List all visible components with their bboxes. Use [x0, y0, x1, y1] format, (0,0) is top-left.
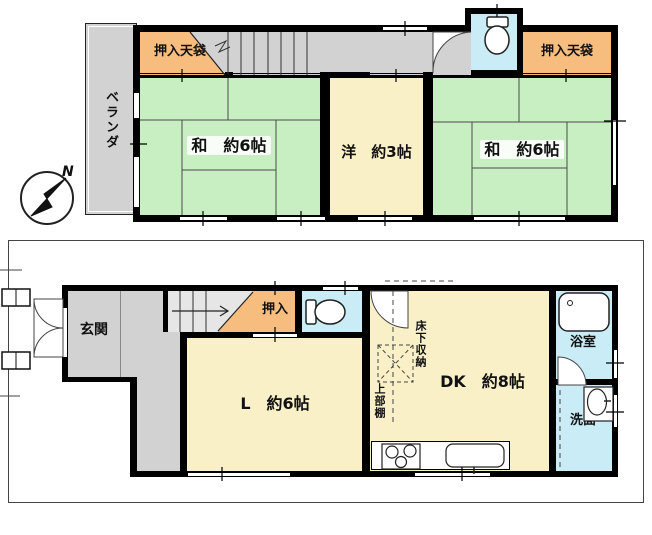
bathroom-label: 浴室: [553, 336, 613, 351]
window-living-south: [188, 472, 290, 477]
toilet-1f-floor: [302, 291, 362, 332]
compass-north-label: N: [62, 164, 74, 180]
stairs-left-wall: [163, 291, 168, 332]
window-2f-right: [612, 120, 617, 185]
wall-west-right: [423, 72, 433, 215]
pier-western-top: [330, 72, 370, 78]
western-top-track: [370, 73, 423, 78]
window-2f-bottom-1: [180, 216, 227, 221]
veranda-door-2: [133, 157, 140, 207]
closet-left-label: 押入天袋: [140, 45, 220, 60]
hall-strip-floor: [137, 332, 180, 471]
room-japanese-right-label: 和 約6帖: [443, 141, 601, 159]
upper-shelf-label: 上部棚: [371, 383, 387, 419]
window-2f-bottom-2: [277, 216, 325, 221]
window-kitchen-south: [415, 472, 490, 477]
living-dk-wall: [362, 291, 370, 471]
floor-plan: ベランダ 押入天袋 押入天袋 和 約6帖 洋 約3帖 和 約6帖: [0, 0, 652, 535]
washroom-label: 洗面: [553, 414, 613, 429]
closet-1f-fusuma: [253, 333, 297, 338]
pier-hall-end: [423, 72, 433, 78]
pier-stairs: [225, 72, 233, 78]
floor1-left-lower-wall: [130, 377, 137, 477]
floor2-toilet-floor: [471, 14, 517, 70]
room-western-label: 洋 約3帖: [330, 144, 423, 161]
room-japanese-left-label: 和 約6帖: [150, 137, 308, 155]
window-1f-top: [323, 286, 358, 291]
living-label: L 約6帖: [195, 395, 355, 413]
window-bath-east: [613, 350, 618, 378]
closet-1f-label: 押入: [250, 303, 300, 318]
wall-left-west: [320, 72, 330, 215]
window-wash-east: [613, 395, 618, 427]
entrance-label: 玄関: [66, 322, 122, 338]
compass: N: [21, 164, 74, 224]
bath-wash-wall-b: [584, 379, 618, 385]
window-2f-top: [383, 26, 427, 31]
living-left-wall: [180, 332, 187, 471]
hall-room-line: [433, 75, 471, 76]
floor1-notch-wall: [62, 377, 133, 382]
veranda-door-1: [133, 93, 140, 118]
window-2f-bottom-3: [358, 216, 412, 221]
veranda-label: ベランダ: [101, 90, 120, 150]
underfloor-storage-label: 床下収納: [412, 320, 428, 368]
window-2f-bottom-4: [474, 216, 565, 221]
kitchen-counter: [371, 441, 510, 470]
closet-right-label: 押入天袋: [523, 45, 611, 60]
closet-right-track: [523, 73, 611, 78]
dk-label: DK 約8帖: [395, 373, 570, 391]
